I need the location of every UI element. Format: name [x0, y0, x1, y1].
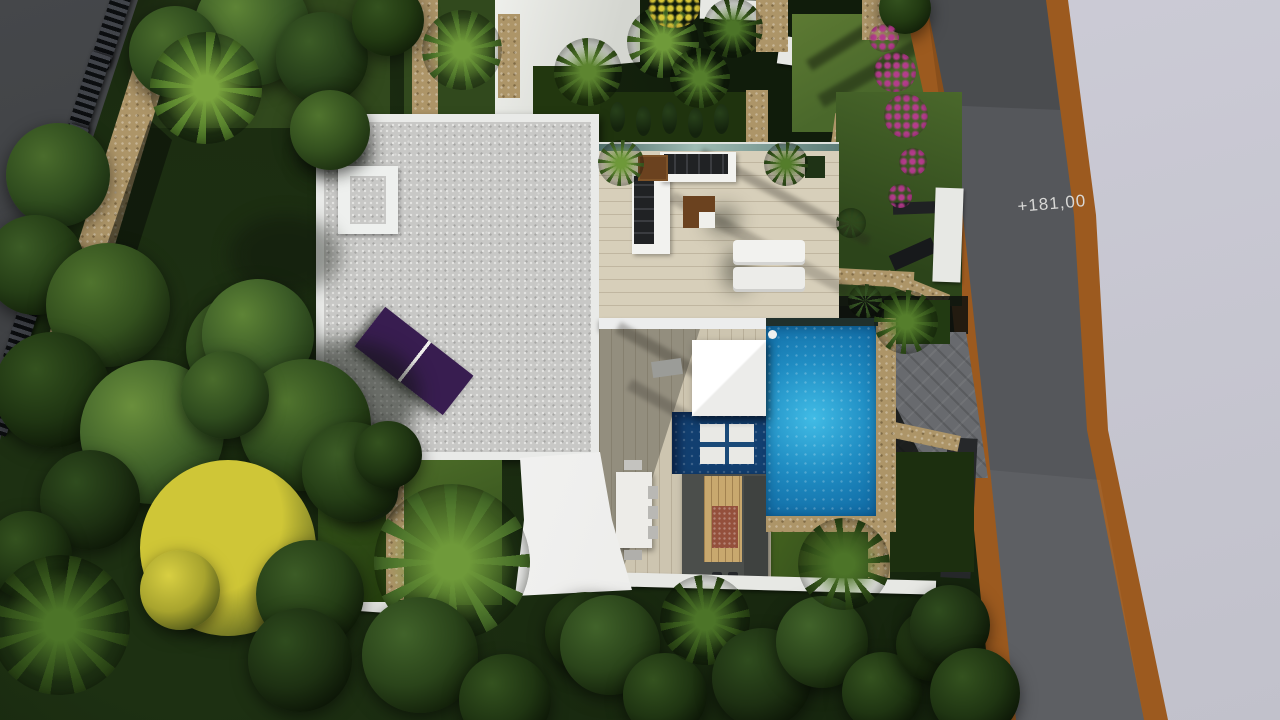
bougainvillea	[874, 52, 916, 92]
garden-bed	[890, 452, 974, 572]
sun-lounger	[733, 267, 805, 292]
entrance-wall	[932, 188, 963, 283]
coffee-table-tray	[699, 212, 715, 228]
bougainvillea	[869, 24, 899, 52]
aloe-plant	[836, 208, 866, 238]
conifer-hedge	[688, 108, 703, 138]
bougainvillea	[899, 148, 927, 176]
tree-canopy	[6, 123, 110, 227]
aloe-plant	[848, 284, 882, 318]
sun-lounger	[733, 240, 805, 265]
pool-ladder-dot	[768, 330, 777, 339]
pool-loungers	[700, 424, 754, 464]
palm-tree	[598, 140, 644, 186]
conifer-hedge	[714, 104, 729, 134]
tree-canopy	[181, 351, 269, 439]
conifer-hedge	[610, 102, 625, 132]
dining-chair	[648, 526, 658, 539]
aerial-villa-render: +181,00	[0, 0, 1280, 720]
kitchen-counter	[744, 476, 768, 576]
tree-canopy	[290, 90, 370, 170]
dining-chair	[624, 460, 642, 470]
conifer-hedge	[636, 106, 651, 136]
bbq-grill	[712, 506, 738, 548]
conifer-hedge	[662, 102, 677, 134]
skylight-opening	[350, 176, 386, 224]
pool-top-edge	[766, 318, 878, 326]
dining-chair	[648, 506, 658, 519]
pergola-canopy	[692, 340, 766, 416]
palm-tree	[150, 32, 262, 144]
bougainvillea	[888, 184, 912, 208]
dining-chair	[648, 486, 658, 499]
tree-canopy	[248, 608, 352, 712]
tree-canopy	[354, 421, 422, 489]
dining-chair	[624, 550, 642, 560]
sofa-cushions	[634, 176, 654, 244]
yellow-tree	[140, 550, 220, 630]
dining-table	[616, 472, 652, 548]
palm-tree	[874, 290, 938, 354]
sofa-cushions	[664, 154, 728, 174]
bougainvillea	[884, 94, 928, 138]
